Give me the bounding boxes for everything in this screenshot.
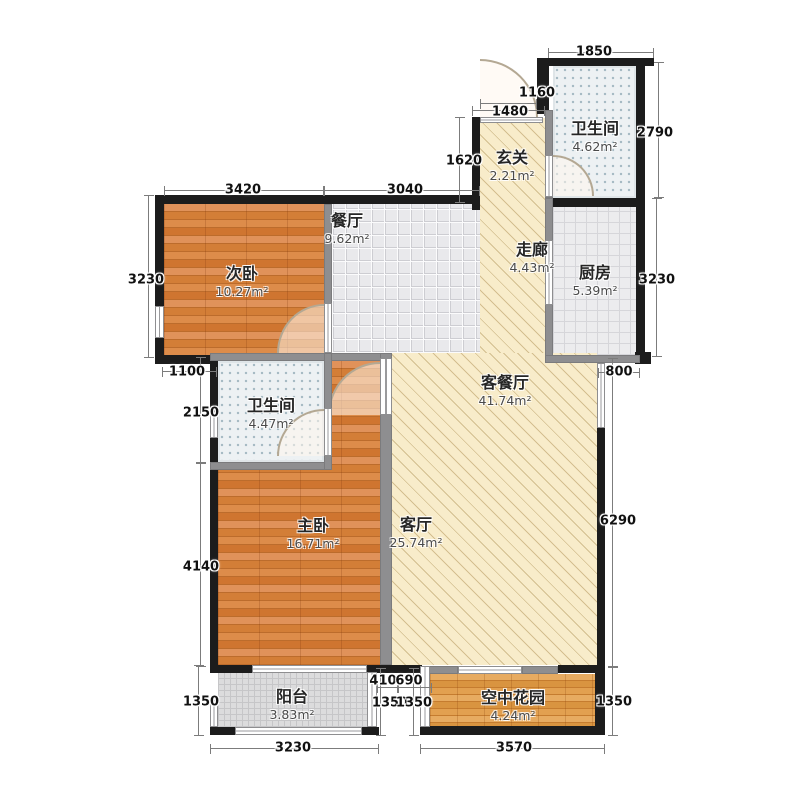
dim-label: 3230 xyxy=(639,273,675,288)
wall-bathroom-mid-top xyxy=(210,353,392,361)
room-label-bathroom-mid: 卫生间 4.47m² xyxy=(247,396,295,432)
dim-label: 3230 xyxy=(128,273,164,288)
window-balcony-bottom xyxy=(235,727,362,735)
wall-exterior-right xyxy=(597,426,605,673)
dim-label: 4140 xyxy=(183,560,219,575)
room-area: 4.43m² xyxy=(509,260,554,276)
room-area: 9.62m² xyxy=(324,231,369,247)
room-label-corridor: 走廊 4.43m² xyxy=(509,240,554,276)
dim-label: 1100 xyxy=(169,365,205,380)
dim-label: 3420 xyxy=(225,183,261,198)
dim-label: 2150 xyxy=(183,406,219,421)
wall-bottom-master-left xyxy=(210,665,252,673)
room-area: 41.74m² xyxy=(479,393,532,409)
dim-label: 1620 xyxy=(446,154,482,169)
wall-kitchen-bottom xyxy=(545,355,640,363)
dim-label: 1480 xyxy=(492,105,528,120)
room-area: 5.39m² xyxy=(572,283,617,299)
room-label-living: 客厅 25.74m² xyxy=(390,515,443,551)
window-garden-top-slider xyxy=(458,666,522,674)
room-name: 厨房 xyxy=(572,263,617,283)
dim-label: 3040 xyxy=(387,183,423,198)
door-balcony-slider xyxy=(252,665,367,673)
room-name: 主卧 xyxy=(287,516,340,536)
floor-plan: 1850 1160 1480 1620 3420 3040 2790 3230 … xyxy=(0,0,800,800)
room-area: 4.47m² xyxy=(247,416,295,432)
dim-label: 2790 xyxy=(637,126,673,141)
room-name: 卫生间 xyxy=(571,119,619,139)
door-opening-master xyxy=(380,358,392,415)
wall-exterior-left-lower xyxy=(210,355,218,673)
room-name: 卫生间 xyxy=(247,396,295,416)
dim-label: 3570 xyxy=(496,741,532,756)
dim-label: 1350 xyxy=(596,695,632,710)
room-label-bedroom2: 次卧 10.27m² xyxy=(216,264,269,300)
dim-label: 1350 xyxy=(183,695,219,710)
room-label-master: 主卧 16.71m² xyxy=(287,516,340,552)
room-name: 阳台 xyxy=(269,687,314,707)
room-area: 4.24m² xyxy=(481,708,545,724)
dim-label: 690 xyxy=(395,674,422,689)
room-label-balcony: 阳台 3.83m² xyxy=(269,687,314,723)
door-opening-bedroom2 xyxy=(324,303,332,353)
wall-exterior-step xyxy=(155,355,217,364)
dim-label: 1350 xyxy=(396,696,432,711)
room-name: 餐厅 xyxy=(324,211,369,231)
dim-label: 1850 xyxy=(576,45,612,60)
room-area: 2.21m² xyxy=(489,168,534,184)
dim-label: 410 xyxy=(369,674,396,689)
wall-exterior-top xyxy=(155,195,480,204)
room-label-bathroom-top: 卫生间 4.62m² xyxy=(571,119,619,155)
wall-garden-top-right xyxy=(522,666,558,674)
room-label-living-dining: 客餐厅 41.74m² xyxy=(479,373,532,409)
dim-label: 1160 xyxy=(519,86,555,101)
room-name: 客餐厅 xyxy=(479,373,532,393)
door-opening-bathroom-top xyxy=(545,155,553,197)
room-area: 16.71m² xyxy=(287,536,340,552)
room-area: 4.62m² xyxy=(571,139,619,155)
room-label-sky-garden: 空中花园 4.24m² xyxy=(481,688,545,724)
dim-label: 800 xyxy=(605,365,632,380)
room-area: 3.83m² xyxy=(269,707,314,723)
wall-garden-bottom xyxy=(420,726,605,735)
room-name: 玄关 xyxy=(489,148,534,168)
room-area: 10.27m² xyxy=(216,284,269,300)
dim-label: 3230 xyxy=(275,741,311,756)
dim-line xyxy=(612,358,613,667)
room-label-entry: 玄关 2.21m² xyxy=(489,148,534,184)
door-opening-bathroom-mid xyxy=(324,408,332,456)
dim-label: 6290 xyxy=(600,514,636,529)
room-name: 空中花园 xyxy=(481,688,545,708)
wall-bathroom-kitchen-divider xyxy=(545,198,645,207)
wall-balcony-corner-left xyxy=(210,727,235,735)
room-name: 次卧 xyxy=(216,264,269,284)
room-label-kitchen: 厨房 5.39m² xyxy=(572,263,617,299)
room-name: 客厅 xyxy=(390,515,443,535)
room-area: 25.74m² xyxy=(390,535,443,551)
wall-bathroom-mid-bottom xyxy=(210,462,332,470)
window-bedroom2 xyxy=(155,306,164,338)
room-name: 走廊 xyxy=(509,240,554,260)
room-label-dining: 餐厅 9.62m² xyxy=(324,211,369,247)
wall-balcony-corner-right xyxy=(362,727,379,735)
